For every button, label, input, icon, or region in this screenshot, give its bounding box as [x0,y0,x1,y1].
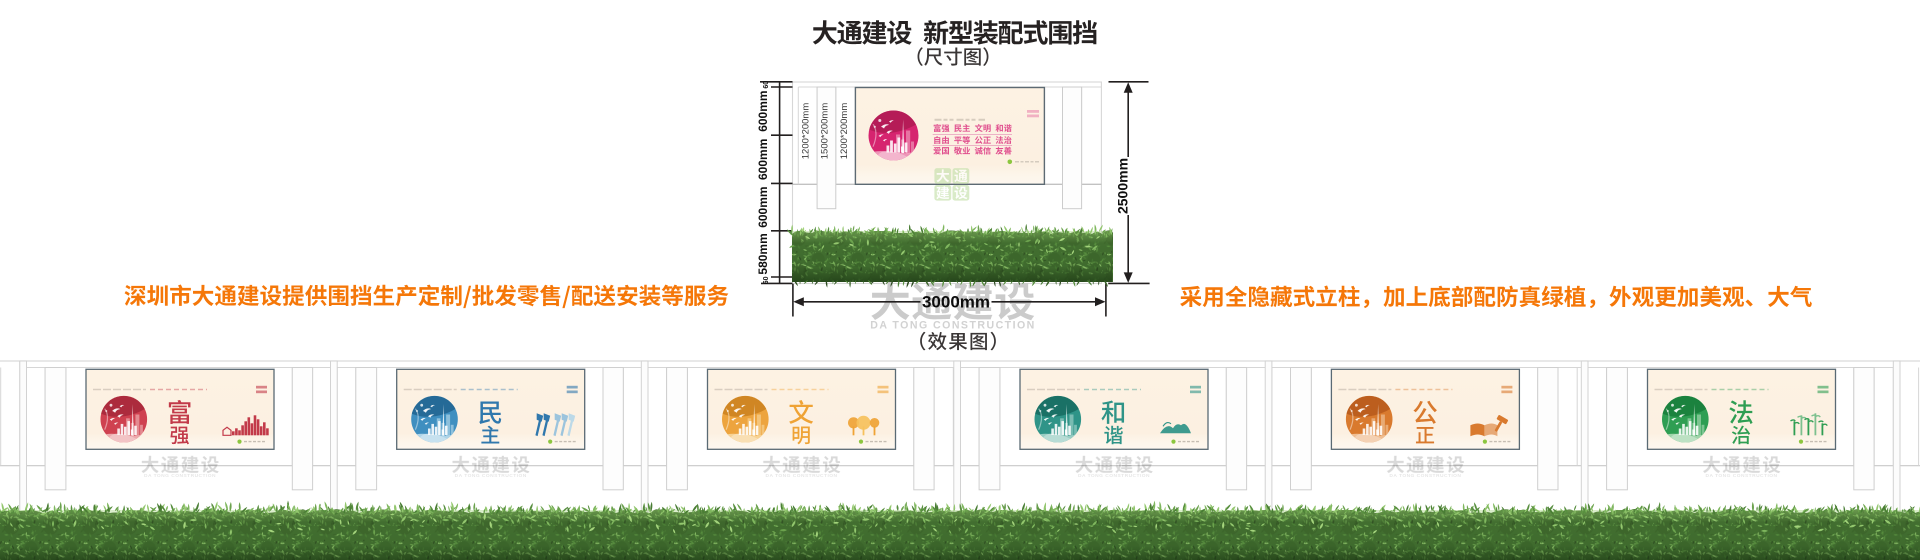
svg-text:600mm: 600mm [756,186,770,227]
svg-text:580mm: 580mm [756,233,770,274]
svg-text:2500mm: 2500mm [1114,158,1130,214]
svg-text:600mm: 600mm [756,139,770,180]
svg-text:DA TONG CONSTRUCTION: DA TONG CONSTRUCTION [1078,473,1150,479]
svg-text:DA TONG CONSTRUCTION: DA TONG CONSTRUCTION [1389,473,1461,479]
svg-text:60: 60 [763,81,770,89]
svg-text:3000mm: 3000mm [922,293,990,312]
svg-text:DA TONG CONSTRUCTION: DA TONG CONSTRUCTION [455,473,527,479]
svg-text:DA TONG CONSTRUCTION: DA TONG CONSTRUCTION [870,319,1036,331]
svg-text:60: 60 [763,276,770,284]
svg-text:600mm: 600mm [756,90,770,131]
svg-text:1200*200mm: 1200*200mm [839,103,850,160]
svg-text:DA TONG CONSTRUCTION: DA TONG CONSTRUCTION [1705,473,1777,479]
svg-text:1500*200mm: 1500*200mm [819,103,830,160]
svg-text:DA TONG CONSTRUCTION: DA TONG CONSTRUCTION [144,473,216,479]
svg-text:1200*200mm: 1200*200mm [801,103,812,160]
svg-text:DA TONG CONSTRUCTION: DA TONG CONSTRUCTION [765,473,837,479]
